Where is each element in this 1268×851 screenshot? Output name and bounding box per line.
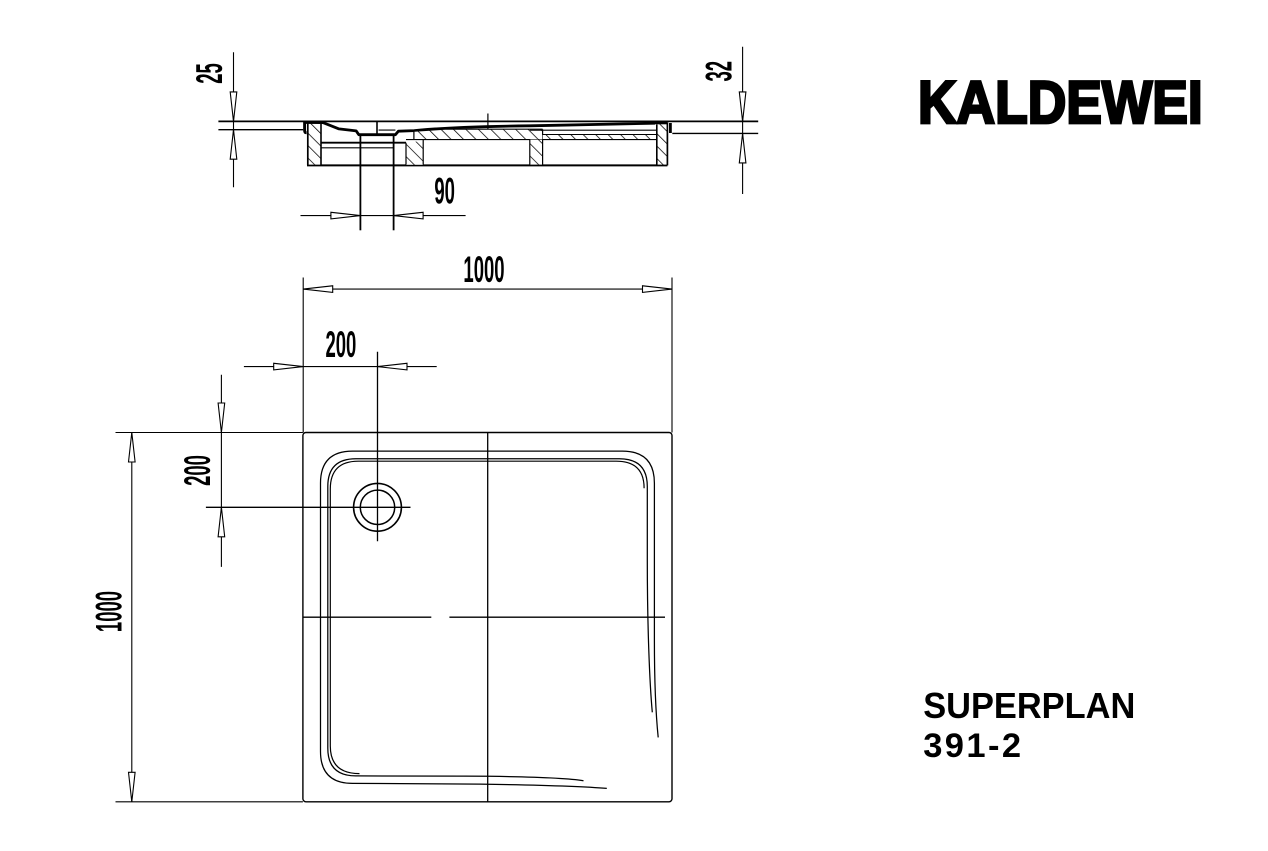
svg-text:32: 32 xyxy=(700,61,740,82)
svg-text:1000: 1000 xyxy=(463,251,504,291)
svg-text:200: 200 xyxy=(178,455,218,486)
svg-text:90: 90 xyxy=(434,172,455,212)
svg-text:SUPERPLAN: SUPERPLAN xyxy=(923,685,1135,726)
svg-text:200: 200 xyxy=(325,326,356,366)
svg-text:1000: 1000 xyxy=(90,591,130,632)
svg-text:25: 25 xyxy=(190,63,230,84)
svg-text:391-2: 391-2 xyxy=(923,727,1023,765)
svg-text:KALDEWEI: KALDEWEI xyxy=(918,70,1203,137)
